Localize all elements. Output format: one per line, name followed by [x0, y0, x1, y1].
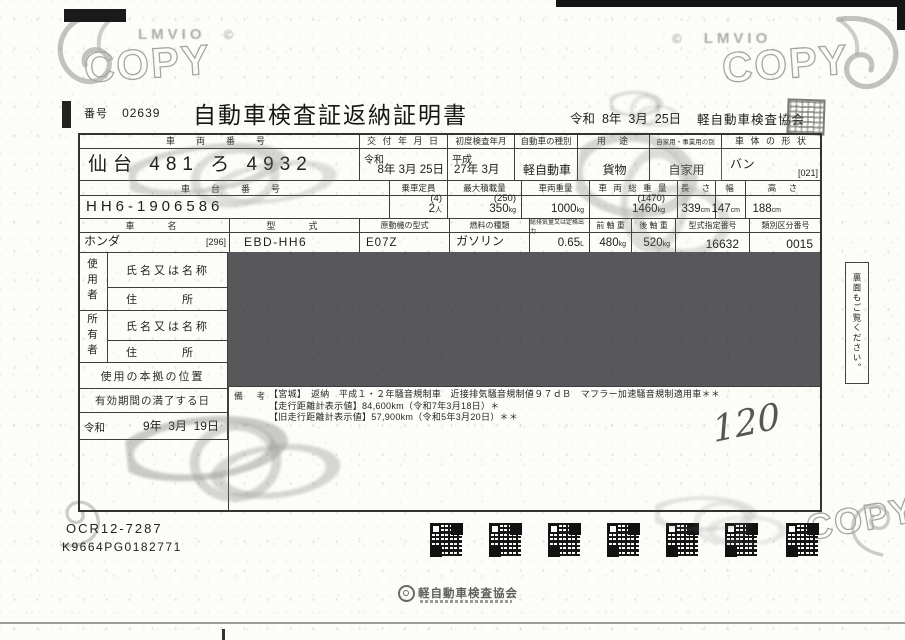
vehicle-weight-number: 1000: [551, 203, 577, 215]
displacement-unit: L: [580, 241, 584, 248]
height-value: 188cm: [746, 196, 822, 219]
width-value: 147cm: [716, 196, 746, 219]
type-designation-number: 16632: [706, 239, 739, 250]
engine-model-value: E07Z: [360, 233, 450, 253]
qr-code-icon: [430, 523, 462, 556]
user-name-label: 氏名又は名称: [108, 253, 228, 288]
body-shape-code: [021]: [798, 168, 818, 178]
qr-code-icon: [666, 523, 698, 556]
scan-artifact-bar: [556, 0, 905, 7]
copyright-icon: ©: [672, 31, 686, 46]
plate-number-value: 仙台 481 ろ 4932: [78, 149, 360, 181]
private-business-text: 自家用: [668, 161, 704, 178]
scan-artifact-block: [62, 101, 71, 128]
side-note-box: 裏面もご覧ください。: [845, 262, 869, 384]
scanned-certificate-page: LMVIO © © LMVIO COPY COPY COPY 番号 02639 …: [0, 0, 905, 640]
copy-watermark-top-right: COPY: [720, 36, 850, 93]
col-header-vehicle-kind: 自動車の種別: [515, 133, 578, 149]
rear-axle-unit: kg: [663, 241, 670, 248]
capacity-value: (4) 2人: [390, 196, 448, 219]
length-number: 339: [681, 203, 700, 215]
col-header-body-shape: 車 体 の 形 状: [722, 133, 822, 149]
qr-code-icon: [607, 523, 639, 556]
col-header-type-designation: 型式指定番号: [676, 219, 750, 233]
plate-number-text: 仙台 481 ろ 4932: [88, 149, 313, 176]
chassis-number-text: HH6-1906586: [86, 198, 223, 215]
side-note-text: 裏面もご覧ください。: [851, 273, 863, 373]
gross-weight-value: (1470) 1460kg: [590, 196, 678, 219]
organization-name: 軽自動車検査協会: [418, 585, 518, 601]
expiry-label: 有効期間の満了する日: [78, 389, 228, 413]
expiry-era: 令和: [84, 420, 105, 435]
document-number-value: 02639: [122, 106, 160, 120]
engine-model-text: E07Z: [366, 237, 398, 249]
model-text: EBD-HH6: [244, 235, 307, 249]
col-header-chassis-number: 車 台 番 号: [78, 181, 390, 196]
chassis-number-value: HH6-1906586: [78, 196, 390, 219]
col-header-class-number: 類別区分番号: [750, 219, 822, 233]
col-header-length: 長 さ: [678, 181, 716, 196]
document-number-label: 番号: [84, 108, 108, 120]
make-cell: ホンダ [296]: [78, 233, 230, 253]
col-header-model: 型 式: [230, 219, 360, 233]
width-number: 147: [711, 203, 730, 215]
qr-code-icon: [489, 523, 521, 556]
class-number-text: 0015: [786, 239, 813, 250]
organization-subtext-line: [420, 600, 512, 603]
max-load-value: (250) 350kg: [448, 196, 522, 219]
ocr-code: OCR12-7287: [66, 521, 163, 536]
col-header-vehicle-weight: 車両重量: [522, 181, 590, 196]
col-header-rear-axle: 後 軸 重: [632, 219, 676, 233]
scan-edge-line: [0, 622, 905, 624]
expiry-value-cell: 令和 9年 3月 19日: [78, 413, 228, 440]
document-number: 番号 02639: [84, 105, 160, 121]
user-section-label: 使用者: [78, 253, 108, 311]
expiry-date: 9年 3月 19日: [143, 417, 219, 434]
capacity-unit: 人: [435, 207, 442, 214]
fuel-type-value: ガソリン: [450, 233, 530, 253]
scan-artifact-block: [64, 9, 126, 22]
vehicle-kind-value: 軽自動車: [515, 149, 578, 181]
remark-line: 【宮城】 返納 平成１・２年騒音規制車 近接排気騒音規制値９７ｄＢ マフラー加速…: [269, 389, 817, 401]
length-value: 339cm: [678, 196, 716, 219]
use-text: 貨物: [602, 161, 626, 178]
first-inspection-date: 27年 3月: [454, 161, 499, 177]
col-header-front-axle: 前 軸 重: [590, 219, 632, 233]
col-header-fuel-type: 燃料の種類: [450, 219, 530, 233]
fuel-type-text: ガソリン: [456, 232, 504, 249]
private-business-value: 自家用: [650, 149, 722, 181]
rear-axle-value: 520kg: [632, 233, 676, 253]
issuer-seal-stamp-icon: [786, 98, 825, 135]
width-unit: cm: [731, 207, 740, 214]
issue-date-cell: 令和 8年 3月 25日: [360, 149, 448, 181]
issue-date: 8年 3月 25日: [378, 161, 444, 177]
copyright-icon: ©: [224, 27, 238, 42]
qr-code-icon: [548, 523, 580, 556]
col-header-engine-model: 原動機の型式: [360, 219, 450, 233]
owner-address-label: 住 所: [108, 341, 228, 363]
copy-watermark-top-left: COPY: [82, 36, 212, 93]
first-inspection-cell: 平成 27年 3月: [448, 149, 515, 181]
scan-artifact-tick: [222, 629, 225, 640]
front-axle-unit: kg: [619, 241, 626, 248]
col-header-width: 幅: [716, 181, 746, 196]
owner-name-label: 氏名又は名称: [108, 311, 228, 341]
vehicle-weight-unit: kg: [577, 207, 584, 214]
gross-weight-number: 1460: [632, 203, 658, 215]
make-code: [296]: [206, 237, 226, 247]
owner-section-label: 所有者: [78, 311, 108, 363]
make-text: ホンダ: [84, 232, 120, 249]
page-title: 自動車検査証返納証明書: [193, 96, 468, 130]
qr-code-icon: [786, 523, 818, 556]
col-header-displacement: 総排気量又は定格出力: [530, 219, 590, 233]
serial-code: K9664PG0182771: [62, 540, 182, 554]
use-value: 貨物: [578, 149, 650, 181]
col-header-plate-number: 車 両 番 号: [78, 133, 360, 149]
col-header-use: 用 途: [578, 133, 650, 149]
col-header-height: 高 さ: [746, 181, 822, 196]
base-location-label: 使用の本拠の位置: [78, 363, 228, 389]
col-header-make: 車 名: [78, 219, 230, 233]
scan-artifact-bar: [897, 0, 905, 30]
remarks-label: 備 考: [234, 390, 268, 402]
col-header-private-business: 自家用・事業用の別: [650, 133, 722, 149]
front-axle-number: 480: [599, 237, 618, 249]
front-axle-value: 480kg: [590, 233, 632, 253]
max-load-number: 350: [489, 203, 508, 215]
organization-logo-icon: [398, 585, 415, 602]
body-shape-cell: バン [021]: [722, 149, 822, 181]
qr-code-icon: [725, 523, 757, 556]
rear-axle-number: 520: [643, 237, 662, 249]
height-number: 188: [752, 203, 771, 215]
model-value: EBD-HH6: [230, 233, 360, 253]
displacement-value: 0.65L: [530, 233, 590, 253]
length-unit: cm: [701, 207, 710, 214]
gross-weight-unit: kg: [658, 207, 665, 214]
col-header-first-inspection: 初度検査年月: [448, 133, 515, 149]
height-unit: cm: [772, 207, 781, 214]
displacement-number: 0.65: [558, 237, 580, 249]
vehicle-kind-text: 軽自動車: [523, 161, 571, 178]
class-number-value: 0015: [750, 233, 822, 253]
redaction-block: [228, 252, 822, 386]
body-shape-text: バン: [730, 155, 755, 172]
issue-date-top: 令和 8年 3月 25日: [570, 108, 681, 127]
type-designation-value: 16632: [676, 233, 750, 253]
max-load-unit: kg: [509, 207, 516, 214]
col-header-issue-date: 交 付 年 月 日: [360, 133, 448, 149]
user-address-label: 住 所: [108, 288, 228, 311]
